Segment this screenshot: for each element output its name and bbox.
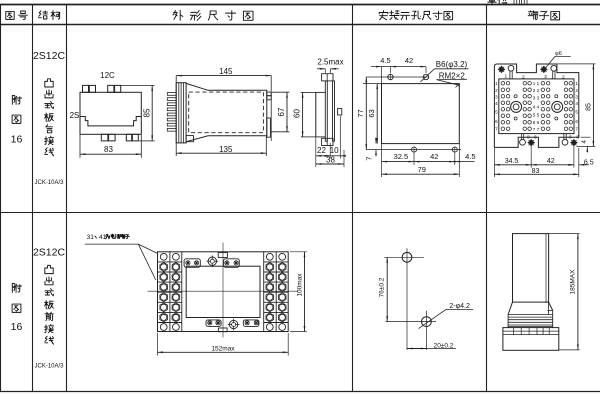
svg-text:145: 145	[219, 67, 233, 76]
svg-text:185MAX: 185MAX	[569, 269, 576, 295]
svg-text:4 4: 4 4	[533, 105, 540, 110]
svg-text:85: 85	[142, 108, 151, 117]
svg-text:83: 83	[532, 168, 540, 175]
svg-text:83: 83	[104, 145, 113, 154]
svg-text:2S12C: 2S12C	[33, 50, 66, 62]
svg-text:5 5: 5 5	[533, 112, 540, 117]
svg-text:16: 16	[11, 134, 23, 146]
svg-text:2.5max: 2.5max	[317, 58, 343, 67]
svg-text:77: 77	[356, 109, 365, 117]
svg-text:8: 8	[527, 135, 530, 140]
svg-text:6: 6	[495, 119, 498, 124]
svg-text:34.5: 34.5	[505, 158, 519, 165]
svg-text:1: 1	[575, 81, 578, 86]
svg-text:20±0.2: 20±0.2	[434, 342, 454, 349]
svg-text:8: 8	[576, 135, 579, 140]
svg-text:2-φ4.2: 2-φ4.2	[449, 303, 470, 310]
svg-text:32.5: 32.5	[394, 152, 409, 161]
svg-text:2: 2	[575, 88, 578, 93]
svg-text:2: 2	[522, 74, 525, 80]
svg-text:4: 4	[495, 101, 498, 106]
svg-text:1 1: 1 1	[533, 81, 540, 86]
svg-text:2 2: 2 2	[533, 88, 540, 93]
svg-text:5: 5	[495, 109, 498, 114]
svg-text:B6(φ3.2): B6(φ3.2)	[436, 60, 468, 69]
svg-text:5: 5	[575, 109, 578, 114]
svg-text:8: 8	[534, 135, 537, 140]
svg-text:100max: 100max	[296, 273, 303, 297]
svg-text:41: 41	[99, 234, 107, 241]
svg-text:6.5: 6.5	[584, 159, 594, 166]
svg-text:JCK-10A/3: JCK-10A/3	[34, 364, 64, 370]
svg-text:10: 10	[330, 146, 339, 155]
svg-text:7: 7	[575, 127, 578, 132]
svg-text:2: 2	[495, 88, 498, 93]
svg-text:6 6: 6 6	[533, 120, 540, 125]
svg-text:2S: 2S	[70, 111, 80, 120]
svg-text:67: 67	[277, 107, 286, 116]
svg-text:7: 7	[495, 127, 498, 132]
svg-text:22: 22	[317, 146, 326, 155]
svg-text:31: 31	[87, 234, 95, 241]
svg-text:JCK-10A/3: JCK-10A/3	[34, 180, 64, 186]
svg-text:3: 3	[495, 94, 498, 99]
svg-text:12C: 12C	[100, 71, 115, 80]
svg-text:135: 135	[219, 145, 233, 154]
svg-text:63: 63	[367, 109, 376, 117]
svg-text:42: 42	[547, 158, 555, 165]
svg-text:7 7: 7 7	[533, 127, 540, 132]
svg-text:4: 4	[575, 101, 578, 106]
svg-text:8: 8	[569, 135, 572, 140]
svg-text:2S12C: 2S12C	[33, 247, 66, 259]
svg-text:2: 2	[562, 74, 565, 80]
svg-text:85: 85	[585, 103, 592, 111]
svg-text:42: 42	[430, 152, 438, 161]
svg-text:：mm: ：mm	[504, 0, 528, 6]
svg-text:16: 16	[11, 321, 23, 333]
svg-text:4.5: 4.5	[380, 56, 390, 65]
svg-text:RM2×2: RM2×2	[439, 71, 466, 80]
svg-text:60: 60	[292, 109, 301, 118]
svg-text:4.5: 4.5	[465, 152, 475, 161]
svg-text:7: 7	[364, 156, 373, 160]
svg-text:42: 42	[405, 56, 413, 65]
svg-text:79: 79	[418, 165, 426, 174]
svg-text:152max: 152max	[211, 345, 235, 352]
svg-text:1: 1	[495, 81, 498, 86]
svg-text:6: 6	[575, 119, 578, 124]
svg-text:76±0.2: 76±0.2	[379, 277, 386, 297]
svg-text:3: 3	[575, 94, 578, 99]
svg-text:3 3: 3 3	[533, 96, 540, 101]
svg-text:38: 38	[326, 156, 335, 165]
